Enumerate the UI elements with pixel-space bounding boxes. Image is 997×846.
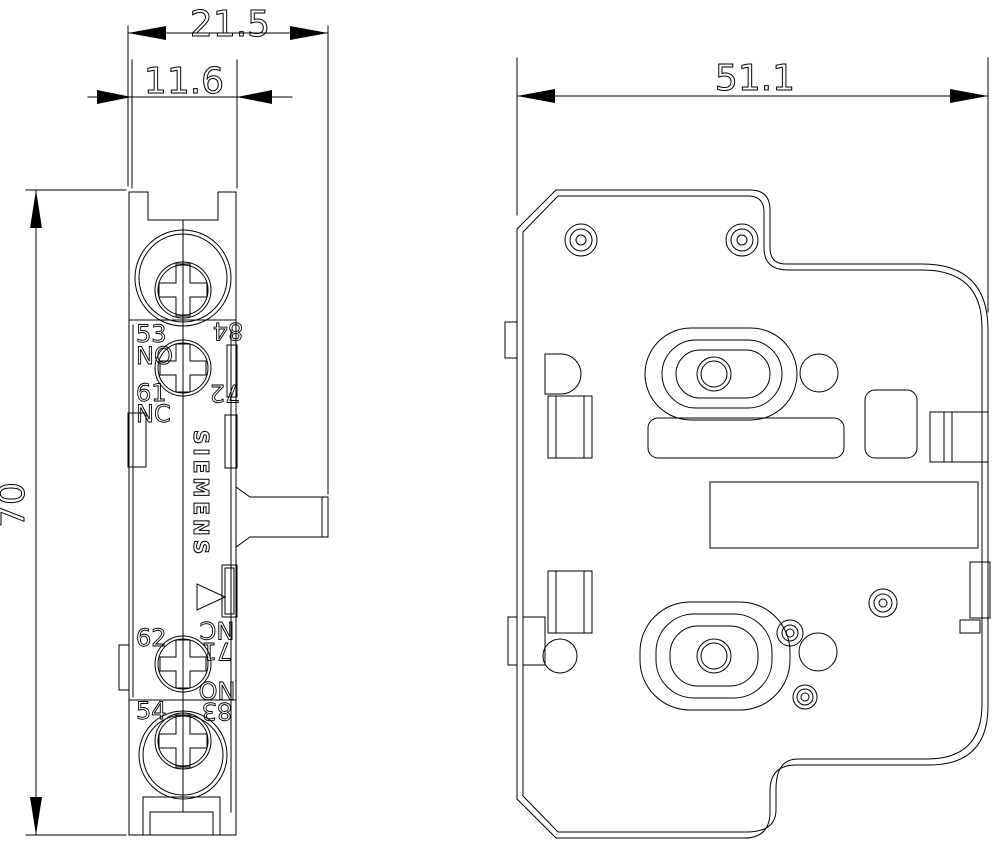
terminal-54-label: 54 (136, 697, 167, 725)
dim-arrow-right (950, 89, 988, 103)
dim-arrow-left (128, 26, 166, 40)
dimension-height: 70 (0, 190, 126, 835)
siemens-logo-text: SIEMENS (189, 430, 213, 558)
cam-triangle-icon (197, 584, 225, 610)
terminal-71-block: 71 NC (200, 616, 235, 665)
pedestal-block (648, 418, 844, 458)
label-recess (710, 482, 978, 548)
dim-front-width-label: 51.1 (715, 58, 795, 99)
front-view (505, 190, 990, 838)
terminal-83-block: 83 NO (199, 676, 236, 725)
front-outline-outer (517, 190, 988, 838)
left-edge-snap-circle (543, 639, 577, 673)
left-rail-lower (548, 571, 592, 633)
dim-arrow-top (30, 190, 42, 228)
dim-arrow-right (290, 26, 328, 40)
hole-mid-right (869, 589, 897, 617)
side-right-opening-3-inner (225, 568, 234, 614)
pin-circle-top (800, 354, 838, 392)
dim-extension-lines (26, 190, 126, 835)
dim-arrow-left (517, 89, 555, 103)
dim-height-label: 70 (0, 482, 33, 528)
side-right-opening-3 (222, 565, 237, 617)
pin-circle-bottom (799, 633, 837, 671)
hole-top-left (565, 224, 597, 256)
dim-arrow-left (97, 90, 132, 104)
oval-boss-bottom (640, 602, 790, 710)
dimension-front-width: 51.1 (517, 58, 988, 312)
dim-arrow-bottom (30, 797, 42, 835)
mounting-tab (236, 487, 328, 547)
oval-boss-top (645, 328, 797, 420)
left-edge-bump (545, 354, 581, 394)
hole-top-right (726, 224, 758, 256)
terminal-62-label: 62 (136, 624, 167, 652)
technical-drawing-canvas: 21.5 11.6 51.1 70 (0, 0, 997, 846)
terminal-72-label: 72 (210, 379, 241, 407)
hole-near-boss-bottom (793, 685, 817, 709)
dim-body-depth-label: 11.6 (144, 61, 224, 102)
right-edge-clip-top (930, 412, 988, 462)
right-edge-clip-bottom (970, 562, 990, 618)
square-boss (865, 390, 917, 458)
dim-arrow-right (237, 90, 272, 104)
side-left-clip (119, 645, 129, 690)
right-edge-small-notch (960, 620, 980, 633)
dim-total-depth-label: 21.5 (190, 4, 270, 45)
left-edge-inner-notch (523, 617, 545, 665)
front-outline-inner (523, 196, 982, 832)
left-edge-notch-top (505, 322, 517, 358)
terminal-53-type-label: NO (136, 342, 173, 370)
terminal-labels-left: 53 NO 61 NC 62 54 (136, 320, 173, 725)
left-edge-notch-bottom (508, 617, 517, 665)
terminal-84-label: 84 (213, 317, 244, 345)
side-view: SIEMENS 53 NO 61 NC 62 54 84 72 71 NC 83… (119, 192, 328, 835)
left-rail-upper (548, 396, 592, 458)
hole-near-boss-top (777, 620, 803, 646)
terminal-61-type-label: NC (136, 400, 171, 428)
terminal-71-type-label: NC (200, 616, 235, 644)
technical-drawing-page: 21.5 11.6 51.1 70 (0, 0, 997, 846)
dimension-body-depth: 11.6 (88, 60, 292, 188)
terminal-83-type-label: NO (199, 676, 236, 704)
